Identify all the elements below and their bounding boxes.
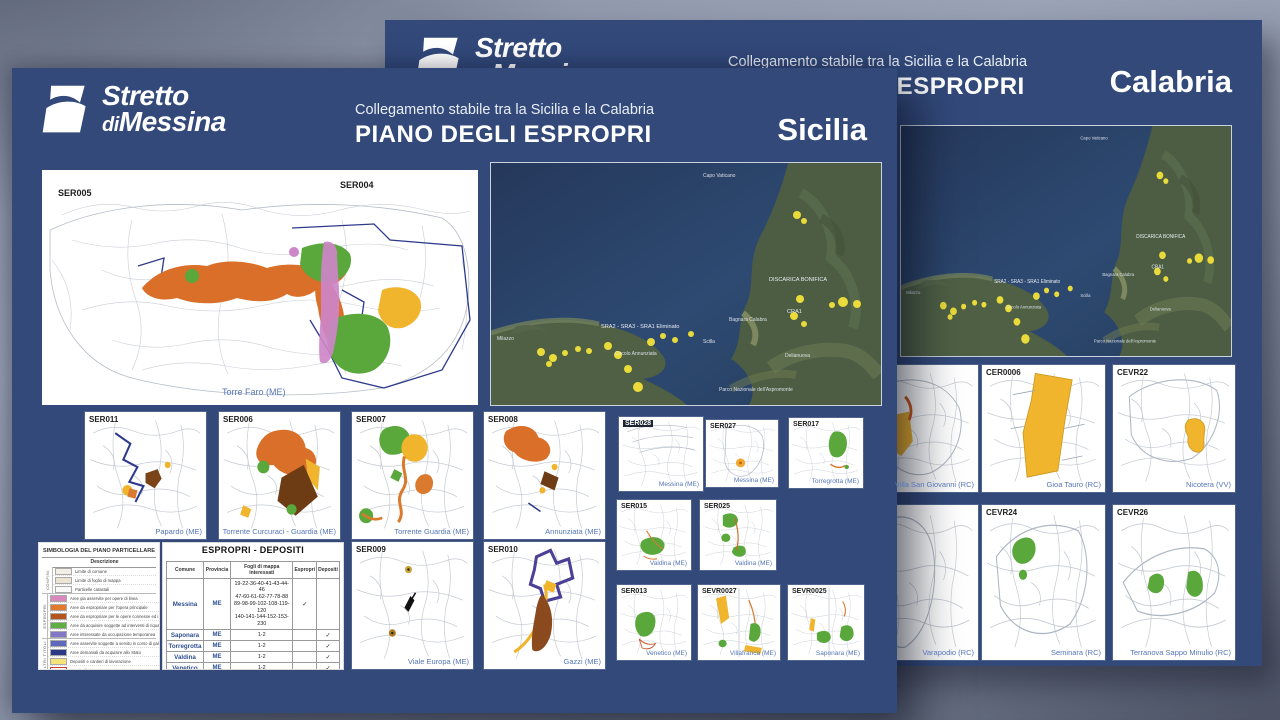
calabria-satellite-map — [900, 125, 1232, 357]
legend-group-altri-titoli: ALTRI TITOLI Aree asservite soggette a s… — [42, 639, 156, 670]
sicilia-board[interactable]: Stretto diMessina Collegamento stabile t… — [12, 68, 897, 713]
thumb-sevr0025: SEVR0025 Saponara (ME) — [788, 585, 864, 660]
thumb-caption: Valdina (ME) — [735, 560, 772, 567]
thumb-terranova: CEVR26 Terranova Sappo Minulio (RC) — [1113, 505, 1235, 660]
legend-row: Limite di foglio di mappa — [53, 576, 156, 585]
sheet-label-ser004: SER004 — [340, 180, 374, 190]
thumb-id: SER011 — [89, 415, 118, 424]
thumb-ser025: SER025 Valdina (ME) — [700, 500, 776, 570]
legend-row: Aree da espropriare per le opere conness… — [48, 612, 160, 621]
thumb-caption: Valdina (ME) — [650, 560, 687, 567]
thumb-gioia-tauro: CER0006 Gioa Tauro (RC) — [982, 365, 1105, 492]
region-label: Calabria — [1110, 64, 1232, 100]
thumb-caption: Gioa Tauro (RC) — [1047, 480, 1101, 489]
thumb-id: CEVR22 — [1117, 368, 1148, 377]
logo-line2: diMessina — [102, 109, 226, 138]
thumb-ser017: SER017 Torregrotta (ME) — [789, 418, 863, 488]
thumb-id: CEVR26 — [1117, 508, 1148, 517]
legend-row: Aree da acquisire soggette ad interventi… — [48, 621, 160, 630]
legend-row: Aree gia asservite per opere di linea — [48, 594, 160, 603]
board-subtitle: Collegamento stabile tra la Sicilia e la… — [355, 102, 654, 118]
stretto-di-messina-logo: Stretto diMessina — [38, 82, 226, 138]
thumb-nicotera: CEVR22 Nicotera (VV) — [1113, 365, 1235, 492]
thumb-ser028: SER028 Messina (ME) — [619, 417, 703, 491]
thumb-ser008: SER008 Annunziata (ME) — [484, 412, 605, 539]
thumb-caption: Torregrotta (ME) — [812, 478, 859, 485]
legend-row: Aree interessate da occupazione temporan… — [48, 630, 160, 638]
thumb-ser011: SER011 Papardo (ME) — [85, 412, 206, 539]
thumb-id: SER007 — [356, 415, 386, 424]
thumb-caption: Seminara (RC) — [1051, 648, 1101, 657]
thumb-caption: Nicotera (VV) — [1186, 480, 1231, 489]
board-title: PIANO DEGLI ESPROPRI — [355, 121, 652, 149]
logo-wordmark: Stretto diMessina — [102, 83, 226, 138]
thumb-caption: Venetico (ME) — [646, 650, 687, 657]
legend-group-confini: CONFINI Limite di comune Limite di fogli… — [42, 567, 156, 594]
thumb-caption: Papardo (ME) — [155, 527, 202, 536]
thumb-caption: Viale Europa (ME) — [408, 657, 469, 666]
thumb-caption: Villa San Giovanni (RC) — [895, 480, 974, 489]
legend-group-label: CONFINI — [45, 570, 50, 590]
main-cadastral-map: SER005 SER004 Torre Faro (ME) — [42, 170, 478, 405]
legend-group-espropri: ESPROPRI Aree gia asservite per opere di… — [42, 594, 156, 639]
thumb-ser007: SER007 Torrente Guardia (ME) — [352, 412, 473, 539]
thumb-caption: Varapodio (RC) — [922, 648, 974, 657]
thumb-caption: Torrente Curcuraci - Guardia (ME) — [223, 527, 336, 536]
stretto-bridge-icon — [38, 82, 94, 138]
thumb-caption: Gazzi (ME) — [564, 657, 602, 666]
thumb-caption: Villafranca (ME) — [730, 650, 776, 657]
stage: Stretto diMessina Collegamento stabile t… — [0, 0, 1280, 720]
thumb-ser009: SER009 Viale Europa (ME) — [352, 542, 473, 669]
thumb-id: SER010 — [488, 545, 518, 554]
legend-row: Depositi e cantieri di lavorazione — [48, 657, 160, 666]
legend-group-label: ALTRI TITOLI — [42, 641, 47, 670]
thumb-caption: Saponara (ME) — [816, 650, 860, 657]
table-row: ValdinaME 1-2 ✓ — [167, 652, 340, 663]
thumb-id: CER0006 — [986, 368, 1021, 377]
sheet-label-ser005: SER005 — [58, 188, 92, 198]
thumb-caption: Annunziata (ME) — [545, 527, 601, 536]
thumb-id: SER017 — [793, 421, 819, 428]
thumb-id: SER027 — [710, 423, 736, 430]
thumb-id: SEVR0025 — [792, 588, 827, 595]
thumb-id: CEVR24 — [986, 508, 1017, 517]
sicilia-satellite-map — [490, 162, 882, 406]
thumb-ser015: SER015 Valdina (ME) — [617, 500, 691, 570]
table-row: SaponaraME 1-2 ✓ — [167, 630, 340, 641]
legend-simbologia: SIMBOLOGIA DEL PIANO PARTICELLARE Descri… — [38, 542, 160, 670]
thumb-ser010: SER010 Gazzi (ME) — [484, 542, 605, 669]
region-label: Sicilia — [777, 112, 867, 148]
thumb-id: SER015 — [621, 503, 647, 510]
thumb-seminara: CEVR24 Seminara (RC) — [982, 505, 1105, 660]
thumb-id: SER008 — [488, 415, 518, 424]
thumb-id: SER009 — [356, 545, 386, 554]
thumb-caption: Torrente Guardia (ME) — [394, 527, 469, 536]
table-header-row: Comune Provincia Fogli di mappa interess… — [167, 562, 340, 579]
legend-row: Limite di comune — [53, 567, 156, 576]
main-map-caption: Torre Faro (ME) — [222, 387, 286, 397]
legend-row: Particelle catastali — [53, 585, 156, 593]
thumb-ser006: SER006 Torrente Curcuraci - Guardia (ME) — [219, 412, 340, 539]
thumb-id: SEVR0027 — [702, 588, 737, 595]
legend-row: Fascia di rispetto — [48, 666, 160, 670]
thumb-sevr0027: SEVR0027 Villafranca (ME) — [698, 585, 780, 660]
thumb-id: SER025 — [704, 503, 730, 510]
thumb-ser013: SER013 Venetico (ME) — [617, 585, 691, 660]
table-row: MessinaME 19-22-36-40-41-43-44-46 47-60-… — [167, 579, 340, 630]
thumb-id: SER013 — [621, 588, 647, 595]
espropri-depositi-table: ESPROPRI - DEPOSITI Comune Provincia Fog… — [162, 542, 344, 670]
legend-row: Aree da espropriare per l'opera principa… — [48, 603, 160, 612]
table-row: VeneticoME 1-2 ✓ — [167, 663, 340, 670]
thumb-id: SER028 — [623, 420, 653, 427]
thumb-id: SER006 — [223, 415, 253, 424]
table-row: TorregrottaME 1-2 ✓ — [167, 641, 340, 652]
legend-row: Aree asservite soggette a servitu in cor… — [48, 639, 160, 648]
thumb-caption: Terranova Sappo Minulio (RC) — [1130, 648, 1231, 657]
table-title: ESPROPRI - DEPOSITI — [163, 543, 343, 558]
thumb-caption: Messina (ME) — [734, 477, 774, 484]
legend-group-label: ESPROPRI — [42, 604, 47, 629]
thumb-ser027: SER027 Messina (ME) — [706, 420, 778, 487]
legend-row: Aree demaniali da acquisire allo Stato — [48, 648, 160, 657]
legend-title: SIMBOLOGIA DEL PIANO PARTICELLARE — [42, 545, 156, 558]
thumb-caption: Messina (ME) — [659, 481, 699, 488]
